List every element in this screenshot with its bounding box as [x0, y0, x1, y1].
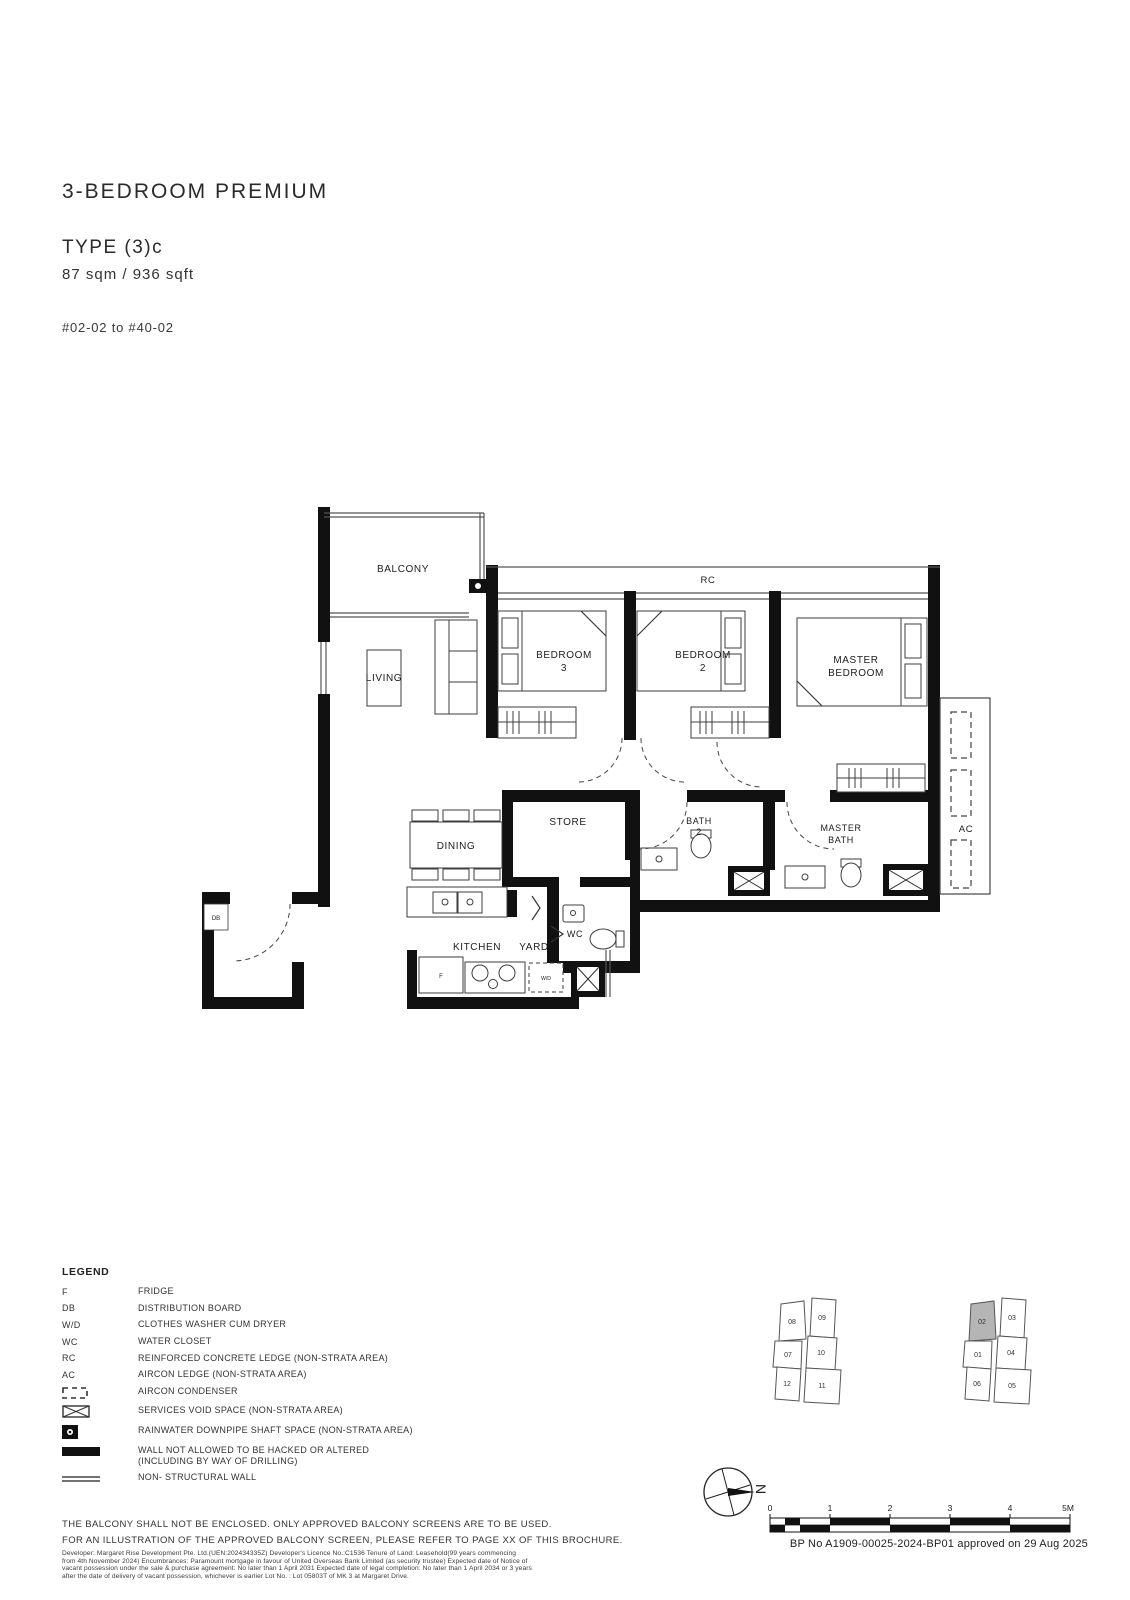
bath2-label: BATH: [686, 816, 712, 826]
bedroom3-number: 3: [561, 663, 567, 674]
service-void-bath2: [728, 866, 770, 896]
legend-row-ac: AC AIRCON LEDGE (NON-STRATA AREA): [62, 1369, 492, 1380]
rc-ledge-label: RC: [701, 575, 716, 586]
legend-row-db: DB DISTRIBUTION BOARD: [62, 1303, 492, 1314]
wall-openings: [230, 642, 330, 904]
services-void-icon: [62, 1405, 90, 1418]
non-structural-wall-icon: [62, 1475, 100, 1483]
key-plan-right: 02 03 01 04 06 05: [942, 1290, 1052, 1415]
wc-label: WC: [567, 929, 583, 939]
rc-symbol: RC: [62, 1353, 138, 1364]
fine-print-line: after the date of delivery of vacant pos…: [62, 1573, 614, 1581]
developer-fine-print: Developer: Margaret Rise Development Pte…: [62, 1550, 614, 1580]
bedroom2-number: 2: [700, 663, 706, 674]
legend-row-aircon-condenser: AIRCON CONDENSER: [62, 1386, 492, 1399]
wd-symbol: W/D: [62, 1319, 138, 1330]
master-door-swing: [717, 742, 762, 787]
fine-print-line: vacant possession under the sale & purch…: [62, 1565, 614, 1573]
wardrobe-bedroom3: [498, 707, 576, 738]
master-bath-label-1: MASTER: [820, 823, 861, 833]
stack-11: 11: [818, 1383, 825, 1390]
hacked-wall-icon: [62, 1447, 100, 1456]
kitchen-counter: [407, 887, 507, 917]
service-void-yard: [571, 961, 605, 997]
balcony-note-2: FOR AN ILLUSTRATION OF THE APPROVED BALC…: [62, 1535, 623, 1546]
stack-08: 08: [788, 1319, 796, 1326]
legend-row-wall-no-hacking: WALL NOT ALLOWED TO BE HACKED OR ALTERED…: [62, 1445, 492, 1466]
bedroom2-label: BEDROOM: [675, 650, 731, 661]
page-title: 3-BEDROOM PREMIUM: [62, 180, 328, 204]
living-label: LIVING: [366, 673, 402, 684]
fridge-label: F: [439, 974, 443, 980]
db-label: DB: [212, 916, 220, 922]
stack-01: 01: [974, 1352, 982, 1359]
stack-10: 10: [817, 1350, 825, 1357]
aircon-condenser-icon: [62, 1387, 88, 1399]
wc-fixtures: [563, 905, 624, 949]
wardrobe-master: [837, 764, 925, 792]
master-bath-label-2: BATH: [828, 835, 854, 845]
scale-tick-0: 0: [768, 1503, 773, 1513]
service-void-master-bath: [883, 864, 929, 896]
unit-area: 87 sqm / 936 sqft: [62, 266, 194, 283]
scale-tick-1: 1: [828, 1503, 833, 1513]
bedroom3-label: BEDROOM: [536, 650, 592, 661]
legend-row-services-void: SERVICES VOID SPACE (NON-STRATA AREA): [62, 1405, 492, 1419]
db-symbol: DB: [62, 1303, 138, 1314]
washer-label: W/D: [541, 976, 551, 982]
bedroom3-door-swing: [578, 738, 622, 782]
north-letter: N: [753, 1484, 769, 1494]
ac-symbol: AC: [62, 1369, 138, 1380]
scale-bar: 0 1 2 3 4 5M: [762, 1500, 1082, 1540]
ac-ledge: [940, 698, 990, 894]
fine-print-line: from 4th November 2024) Encumbrances: Pa…: [62, 1558, 614, 1566]
sofa: [435, 620, 477, 714]
scale-tick-4: 4: [1008, 1503, 1013, 1513]
unit-type-label: TYPE (3)c: [62, 237, 163, 259]
balcony-note-1: THE BALCONY SHALL NOT BE ENCLOSED. ONLY …: [62, 1519, 552, 1530]
wc-symbol: WC: [62, 1336, 138, 1347]
scale-tick-5m: 5M: [1062, 1503, 1074, 1513]
dining-label: DINING: [437, 841, 476, 852]
unit-range: #02-02 to #40-02: [62, 320, 174, 335]
legend: LEGEND F FRIDGE DB DISTRIBUTION BOARD W/…: [62, 1266, 492, 1489]
balcony-label: BALCONY: [377, 564, 429, 575]
scale-tick-2: 2: [888, 1503, 893, 1513]
rainwater-downpipe-icon: [62, 1425, 78, 1439]
aircon-condensers: [951, 712, 971, 888]
stack-05: 05: [1008, 1383, 1016, 1390]
store-label: STORE: [549, 817, 586, 828]
bath2-door-swing: [640, 802, 687, 849]
bath2-number: 2: [696, 827, 702, 837]
fine-print-line: Developer: Margaret Rise Development Pte…: [62, 1550, 614, 1558]
yard-label: YARD: [519, 942, 548, 953]
stack-09: 09: [818, 1315, 826, 1322]
wardrobe-bedroom2: [691, 707, 769, 738]
bedroom2-door-swing: [641, 738, 685, 782]
scale-tick-3: 3: [948, 1503, 953, 1513]
master-bath-fixtures: [785, 859, 861, 888]
stack-07: 07: [784, 1352, 792, 1359]
legend-row-rc: RC REINFORCED CONCRETE LEDGE (NON-STRATA…: [62, 1353, 492, 1364]
legend-row-wd: W/D CLOTHES WASHER CUM DRYER: [62, 1319, 492, 1330]
key-plan-left: 08 09 07 10 12 11: [752, 1290, 862, 1415]
stack-06: 06: [973, 1381, 981, 1388]
stack-03: 03: [1008, 1315, 1016, 1322]
legend-row-fridge: F FRIDGE: [62, 1286, 492, 1297]
master-bedroom-label-1: MASTER: [833, 655, 878, 666]
floor-plan: BALCONY LIVING BEDROOM 3 BEDROOM 2 MASTE…: [185, 480, 995, 1080]
legend-heading: LEGEND: [62, 1266, 492, 1278]
stack-04: 04: [1007, 1350, 1015, 1357]
hob: [465, 962, 525, 993]
stack-12: 12: [783, 1381, 791, 1388]
master-bedroom-label-2: BEDROOM: [828, 668, 884, 679]
stack-02: 02: [978, 1319, 986, 1326]
kitchen-label: KITCHEN: [453, 942, 501, 953]
legend-row-rainwater-downpipe: RAINWATER DOWNPIPE SHAFT SPACE (NON-STRA…: [62, 1425, 492, 1440]
rainwater-downpipe-shaft: [469, 579, 487, 593]
legend-row-non-structural: NON- STRUCTURAL WALL: [62, 1472, 492, 1483]
bp-approval: BP No A1909-00025-2024-BP01 approved on …: [790, 1538, 1088, 1550]
legend-row-wc: WC WATER CLOSET: [62, 1336, 492, 1347]
ac-ledge-label: AC: [959, 824, 973, 835]
fridge-symbol: F: [62, 1286, 138, 1297]
entry-door-swing: [233, 904, 290, 961]
